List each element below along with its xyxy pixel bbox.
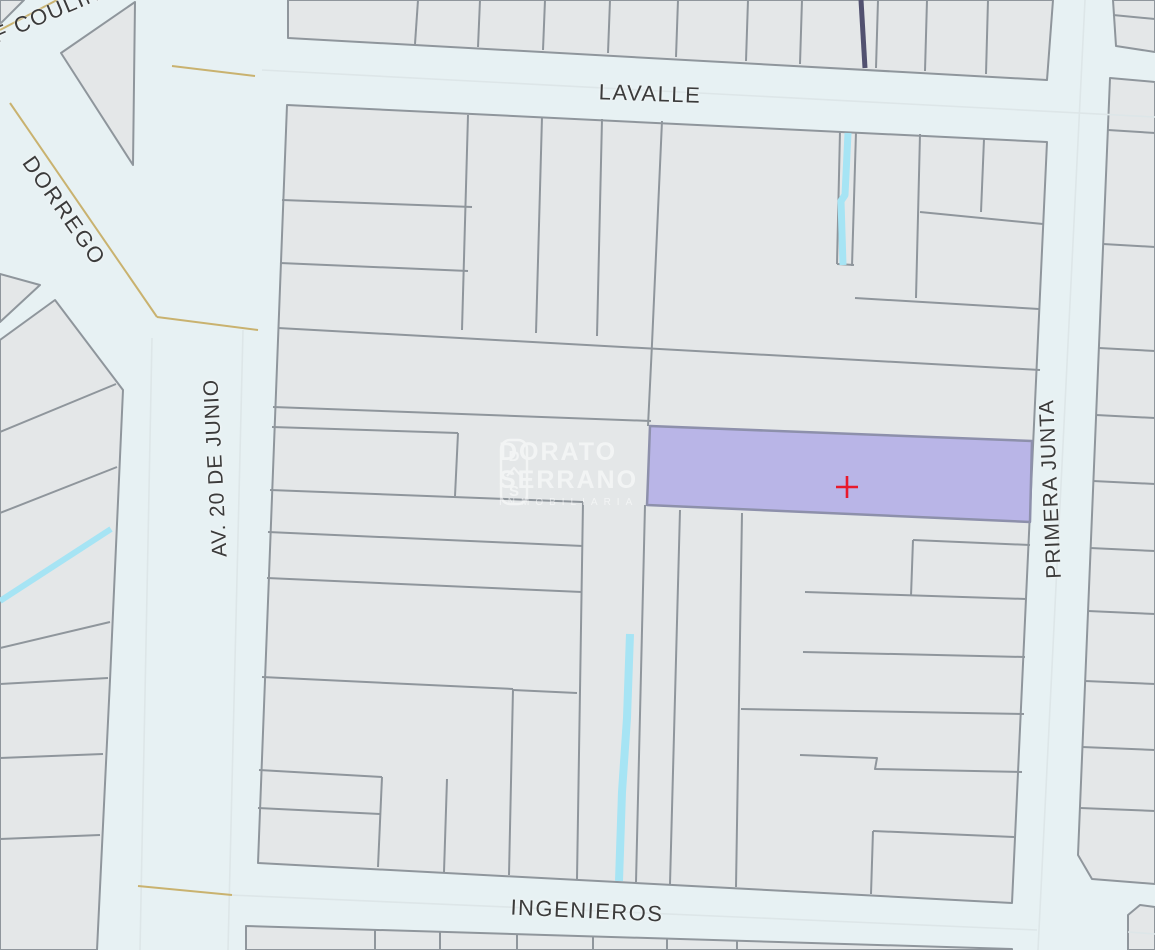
city-block-north-strip xyxy=(288,0,1053,80)
northeast-corner-parcels xyxy=(1113,0,1155,52)
map-canvas[interactable]: . F COULIN DORREGO LAVALLE AV. 20 DE JUN… xyxy=(0,0,1155,950)
city-block-southwest xyxy=(0,300,123,950)
map-layers xyxy=(0,0,1155,950)
street-label-lavalle: LAVALLE xyxy=(598,79,701,109)
highlighted-parcel[interactable] xyxy=(647,426,1032,522)
boundary-top-segment xyxy=(172,66,255,76)
triangle-parcel xyxy=(61,2,135,165)
city-block-east xyxy=(1078,78,1155,884)
av-20-de-junio-west-lane-line xyxy=(140,338,152,950)
city-block-south-strip xyxy=(246,926,1012,950)
boundary-crossing-avenue xyxy=(157,317,258,330)
av-20-de-junio-east-lane-line xyxy=(228,330,243,950)
boundary-crossing-avenue-south xyxy=(138,886,232,895)
southeast-corner-parcel xyxy=(1128,905,1155,950)
